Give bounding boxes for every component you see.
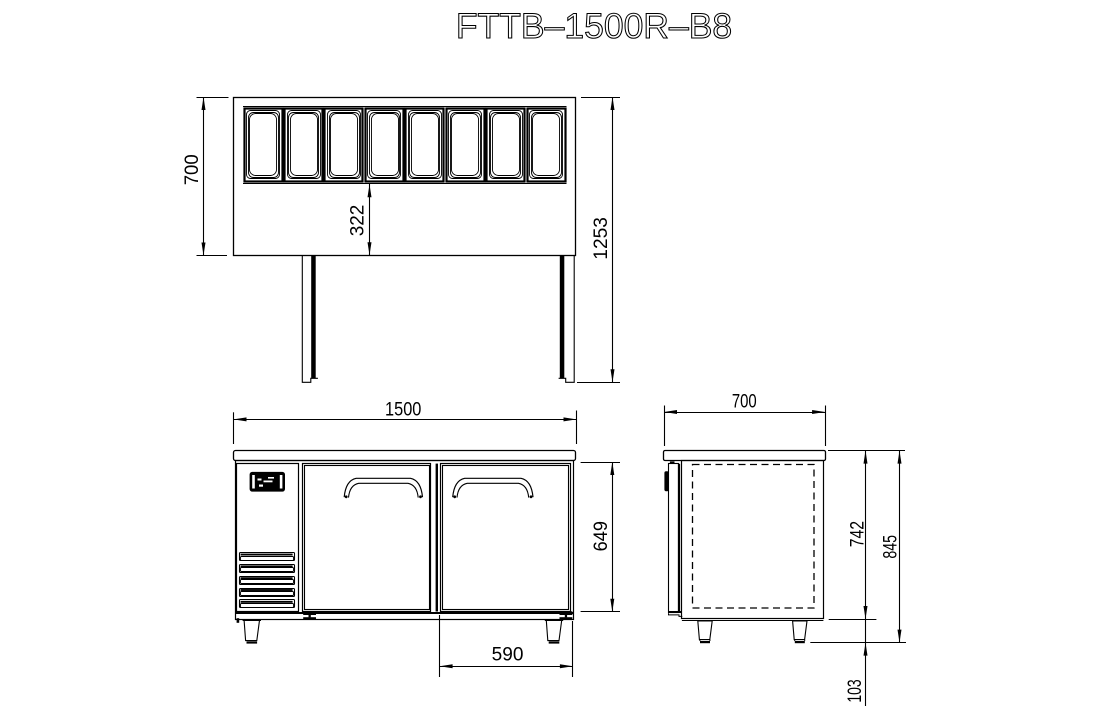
svg-text:FTTB–1500R–B8: FTTB–1500R–B8 bbox=[456, 6, 732, 46]
svg-text:700: 700 bbox=[182, 154, 203, 185]
svg-text:322: 322 bbox=[347, 205, 368, 237]
svg-text:590: 590 bbox=[492, 644, 524, 665]
svg-text:649: 649 bbox=[591, 521, 612, 551]
svg-text:700: 700 bbox=[732, 392, 757, 413]
svg-text:742: 742 bbox=[847, 521, 868, 547]
svg-text:1253: 1253 bbox=[591, 217, 612, 260]
svg-text:845: 845 bbox=[881, 535, 902, 559]
svg-text:103: 103 bbox=[845, 679, 866, 702]
svg-text:1500: 1500 bbox=[385, 399, 421, 420]
